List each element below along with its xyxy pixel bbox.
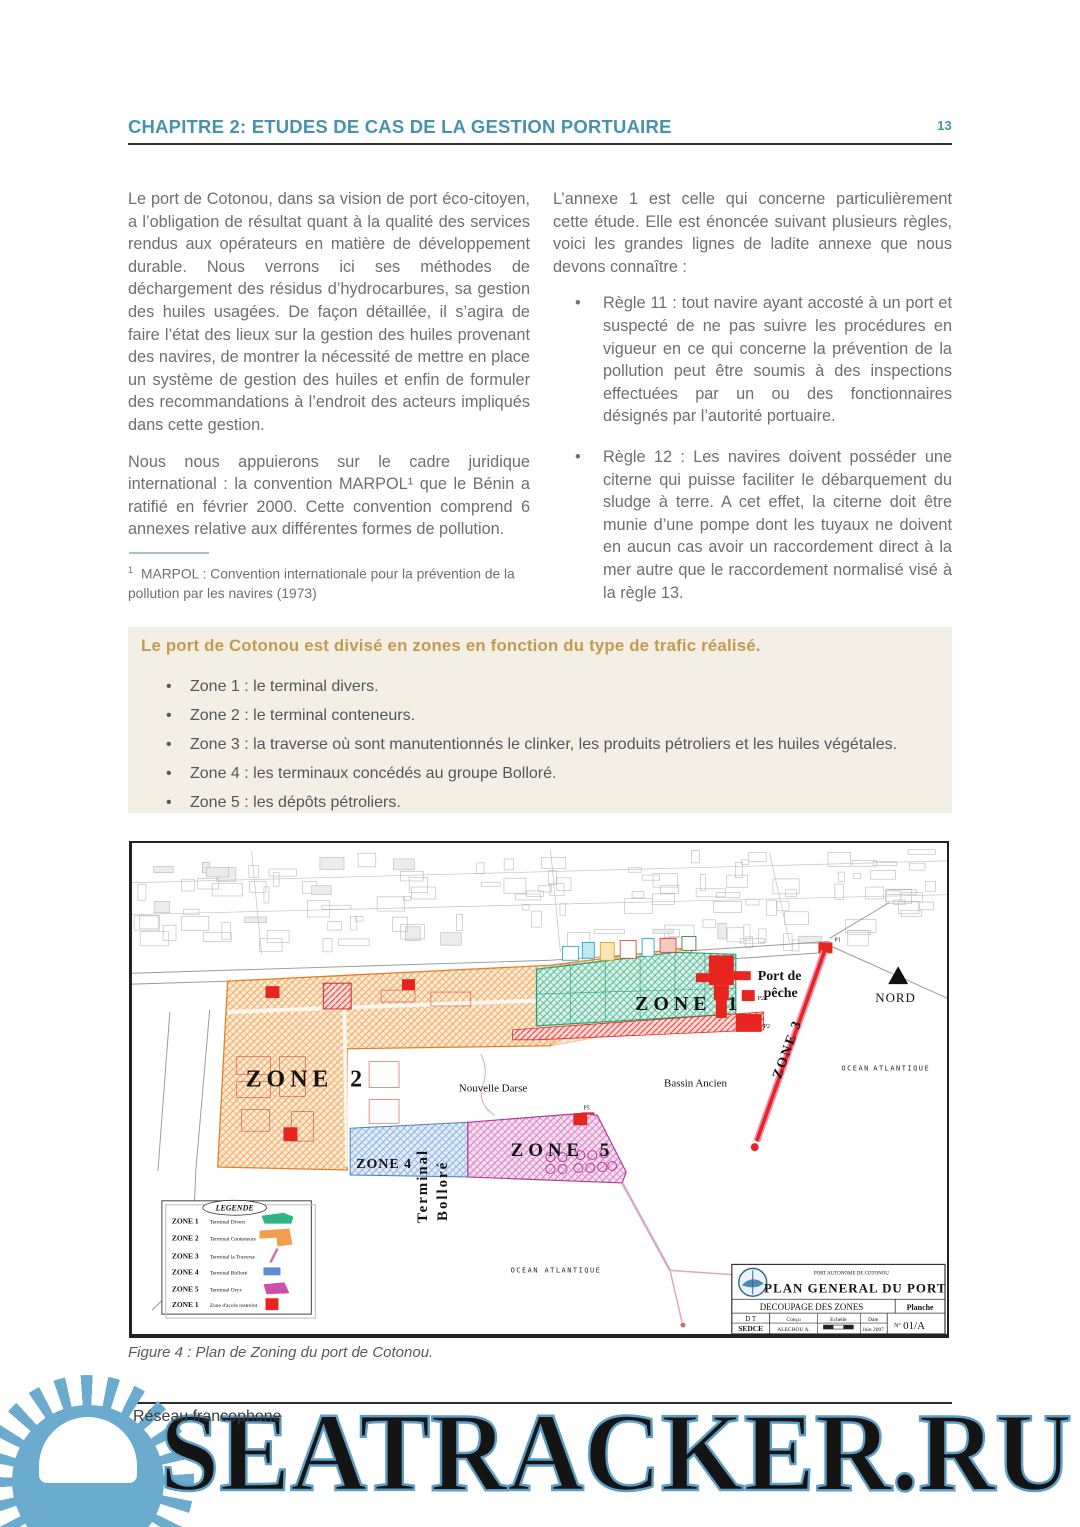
titleblock-date-value: Juin 2007 bbox=[863, 1327, 885, 1333]
terminal-bollore-label1: Terminal bbox=[415, 1149, 431, 1223]
footnote-marker: 1 bbox=[128, 565, 133, 575]
titleblock-author: ALECHOU A. bbox=[777, 1327, 810, 1333]
zone-info-box: Le port de Cotonou est divisé en zones e… bbox=[128, 627, 952, 813]
list-item: Zone 2 : le terminal conteneurs. bbox=[128, 707, 952, 725]
ocean-label-bottom2: ATLANTIQUE bbox=[544, 1266, 601, 1274]
paragraph: Nous nous appuierons sur le cadre juridi… bbox=[128, 451, 530, 541]
ocean-label-bottom: OCEAN bbox=[511, 1266, 539, 1274]
zone-box-title: Le port de Cotonou est divisé en zones e… bbox=[141, 636, 761, 656]
zone5-label: ZONE 5 bbox=[511, 1140, 615, 1161]
legend-label: Terminal Oryx bbox=[210, 1287, 243, 1293]
watermark: SEATRACKER.RU bbox=[158, 1388, 1080, 1516]
marker-label: P2 bbox=[764, 1024, 770, 1030]
legend-label: Terminal Divers bbox=[210, 1220, 246, 1226]
legend-title: LEGENDE bbox=[215, 1204, 254, 1213]
titleblock-org: PORT AUTONOME DE COTONOU bbox=[814, 1271, 889, 1276]
legend-zone: ZONE 1 bbox=[172, 1300, 199, 1309]
titleblock-planche: Planche bbox=[907, 1303, 934, 1312]
page-number: 13 bbox=[937, 118, 952, 133]
port-de-peche-label2: pêche bbox=[764, 986, 798, 1001]
list-item: Zone 3 : la traverse où sont manutention… bbox=[128, 736, 952, 754]
bullet-dot: • bbox=[553, 446, 603, 604]
marker-label: P1 bbox=[834, 937, 840, 943]
port-map-figure: P2 P2 P5 P1 Z bbox=[129, 841, 949, 1338]
zone1-label: ZONE 1 bbox=[635, 993, 742, 1015]
zone-list: Zone 1 : le terminal divers. Zone 2 : le… bbox=[128, 667, 952, 812]
legend-swatch-zone4 bbox=[264, 1267, 281, 1275]
titleblock-num: 01/A bbox=[903, 1320, 925, 1332]
title-block: PORT AUTONOME DE COTONOU PLAN GENERAL DU… bbox=[732, 1264, 947, 1334]
nord-label: NORD bbox=[875, 990, 916, 1005]
city-map-band bbox=[132, 849, 947, 954]
legend-label: Zone d'accès restreint bbox=[210, 1303, 258, 1309]
nouvelle-darse-label: Nouvelle Darse bbox=[459, 1082, 528, 1094]
ocean-label-right2: ATLANTIQUE bbox=[873, 1065, 930, 1073]
titleblock-title: PLAN GENERAL DU PORT bbox=[764, 1280, 946, 1295]
bullet-text: Règle 12 : Les navires doivent posséder … bbox=[603, 446, 952, 604]
zone3-label: ZONE 3 bbox=[770, 1018, 805, 1081]
titleblock-dt: D T bbox=[745, 1315, 757, 1323]
network-label: Réseau francophone bbox=[133, 1408, 282, 1426]
legend-swatch-restricted bbox=[266, 1298, 279, 1310]
legend-zone: ZONE 4 bbox=[172, 1267, 199, 1276]
zone5-marker bbox=[573, 1113, 587, 1125]
footnote: 1MARPOL : Convention internationale pour… bbox=[128, 561, 538, 603]
footnote-rule bbox=[129, 552, 209, 554]
gate-building bbox=[323, 983, 351, 1009]
legend-zone: ZONE 1 bbox=[172, 1217, 199, 1226]
paragraph: Le port de Cotonou, dans sa vision de po… bbox=[128, 188, 530, 437]
port-de-peche-label: Port de bbox=[758, 969, 802, 984]
figure-caption: Figure 4 : Plan de Zoning du port de Cot… bbox=[128, 1344, 433, 1361]
document-page: CHAPITRE 2: ETUDES DE CAS DE LA GESTION … bbox=[0, 0, 1080, 1527]
rule-bullet: • Règle 12 : Les navires doivent posséde… bbox=[553, 446, 952, 604]
titleblock-num-prefix: N° bbox=[894, 1322, 901, 1329]
list-item: Zone 4 : les terminaux concédés au group… bbox=[128, 765, 952, 783]
legend-label: Terminal Conteneurs bbox=[210, 1237, 256, 1243]
header-rule bbox=[128, 143, 952, 145]
chapter-title: CHAPITRE 2: ETUDES DE CAS DE LA GESTION … bbox=[128, 116, 672, 137]
titleblock-echelle: Echelle bbox=[830, 1317, 847, 1323]
list-item: Zone 5 : les dépôts pétroliers. bbox=[128, 794, 952, 812]
legend-label: Terminal la Traverse bbox=[210, 1254, 256, 1260]
legend-zone: ZONE 3 bbox=[172, 1251, 199, 1260]
paragraph: L’annexe 1 est celle qui concerne partic… bbox=[553, 188, 952, 278]
ocean-label-right: OCEAN bbox=[841, 1065, 869, 1073]
bullet-text: Règle 11 : tout navire ayant accosté à u… bbox=[603, 292, 952, 428]
zone2-label: ZONE 2 bbox=[246, 1067, 368, 1093]
right-column: L’annexe 1 est celle qui concerne partic… bbox=[553, 188, 952, 622]
bullet-dot: • bbox=[553, 292, 603, 428]
left-column: Le port de Cotonou, dans sa vision de po… bbox=[128, 188, 530, 555]
legend-label: Terminal Bolloré bbox=[210, 1270, 248, 1276]
list-item: Zone 1 : le terminal divers. bbox=[128, 678, 952, 696]
footnote-text: MARPOL : Convention internationale pour … bbox=[128, 567, 515, 601]
terminal-bollore-label2: Bolloré bbox=[435, 1161, 451, 1221]
marker-label: P5 bbox=[583, 1105, 589, 1111]
titleblock-sedce: SEDCE bbox=[738, 1324, 763, 1333]
legend-zone: ZONE 2 bbox=[172, 1234, 199, 1243]
north-arrow-icon bbox=[888, 966, 908, 984]
legend-zone: ZONE 5 bbox=[172, 1284, 199, 1293]
bassin-ancien-label: Bassin Ancien bbox=[664, 1078, 727, 1090]
port-map: P2 P2 P5 P1 Z bbox=[132, 843, 947, 1334]
titleblock-date: Date bbox=[868, 1317, 879, 1323]
rule-bullet: • Règle 11 : tout navire ayant accosté à… bbox=[553, 292, 952, 428]
chapter-header: CHAPITRE 2: ETUDES DE CAS DE LA GESTION … bbox=[128, 116, 952, 138]
map-legend: LEGENDE ZONE 1 ZONE 2 ZONE 3 ZONE 4 ZONE… bbox=[162, 1200, 315, 1318]
watermark-text: SEATRACKER.RU bbox=[160, 1391, 1072, 1515]
titleblock-subtitle: DECOUPAGE DES ZONES bbox=[760, 1302, 864, 1312]
zone4-label: ZONE 4 bbox=[356, 1157, 412, 1172]
titleblock-concu: Conçu bbox=[786, 1317, 801, 1323]
